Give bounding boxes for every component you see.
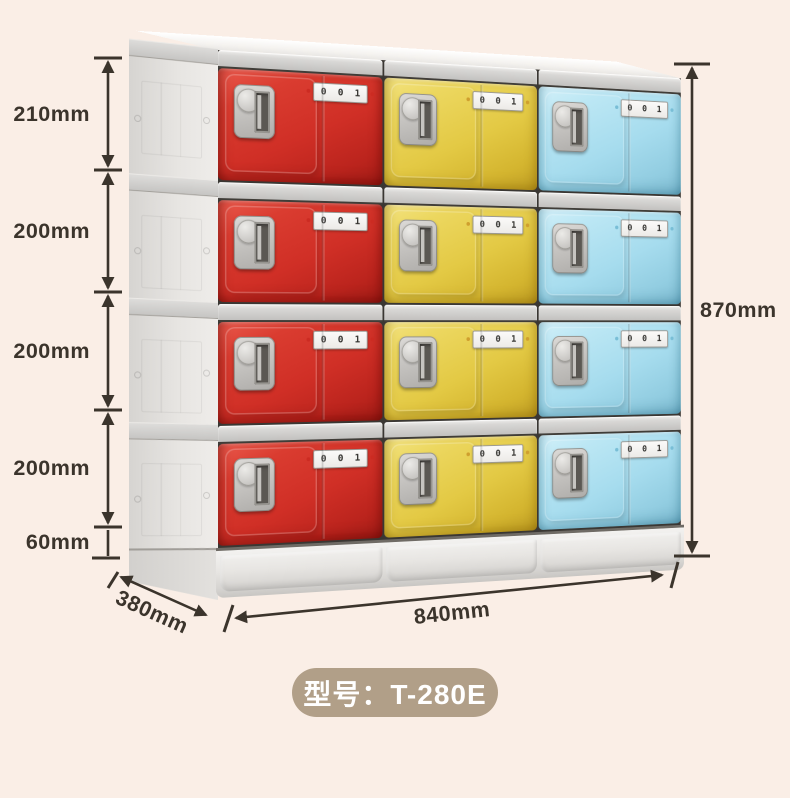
locker-column-yellow: 0 0 1 0 0 1 0 0 1 (384, 60, 537, 540)
door-number-plate: 0 0 1 (313, 331, 367, 350)
locker-door-red: 0 0 1 (218, 440, 382, 546)
door-number-plate: 0 0 1 (473, 444, 524, 463)
depth-label: 380mm (112, 585, 192, 638)
door-lock-handle (399, 452, 437, 505)
door-lock-handle (399, 93, 437, 146)
locker-cabinet: 0 0 1 0 0 1 0 0 1 (218, 50, 681, 598)
locker-side-panel (129, 39, 218, 602)
side-base-plinth (129, 548, 218, 602)
height-segment-label-3: 200mm (13, 339, 90, 363)
door-lock-handle (234, 337, 275, 391)
door-lock-handle (552, 101, 587, 152)
locker-door-blue: 0 0 1 (539, 322, 681, 417)
side-groove-panel (141, 215, 202, 291)
locker-unit: 0 0 1 (384, 305, 537, 422)
key-slot (418, 342, 432, 382)
locker-unit: 0 0 1 (384, 60, 537, 192)
locker-door-yellow: 0 0 1 (384, 435, 537, 537)
width-label: 840mm (413, 597, 492, 629)
screw-dot (134, 371, 141, 378)
locker-unit: 0 0 1 (539, 415, 681, 532)
locker-unit: 0 0 1 (218, 50, 382, 187)
door-lock-handle (399, 336, 437, 388)
dimension-tick (224, 605, 233, 632)
locker-front: 0 0 1 0 0 1 0 0 1 (218, 50, 681, 548)
door-number-plate: 0 0 1 (621, 99, 668, 119)
locker-unit: 0 0 1 (218, 422, 382, 548)
door-number-plate: 0 0 1 (621, 440, 668, 459)
locker-door-yellow: 0 0 1 (384, 205, 537, 304)
door-lock-handle (552, 336, 587, 386)
locker-door-blue: 0 0 1 (539, 86, 681, 195)
key-slot (570, 453, 583, 492)
screw-dot (134, 247, 141, 255)
unit-top-cap (539, 305, 681, 322)
key-slot (418, 458, 432, 499)
locker-door-red: 0 0 1 (218, 322, 382, 424)
key-slot (570, 341, 583, 380)
total-height-dimension: 870mm (674, 64, 777, 556)
base-height-label: 60mm (26, 530, 90, 554)
locker-unit: 0 0 1 (539, 70, 681, 197)
side-row-cap (129, 298, 218, 319)
height-segment-label-2: 200mm (13, 219, 90, 243)
base-segment (220, 547, 382, 591)
locker-unit: 0 0 1 (218, 304, 382, 426)
key-slot (418, 99, 432, 140)
height-segment-label-4: 200mm (13, 456, 90, 480)
side-groove-panel (141, 339, 202, 414)
door-number-plate: 0 0 1 (621, 219, 668, 237)
key-slot (570, 229, 583, 268)
door-number-plate: 0 0 1 (313, 82, 367, 103)
screw-dot (134, 496, 141, 503)
locker-door-blue: 0 0 1 (539, 432, 681, 531)
side-groove-panel (141, 463, 202, 536)
locker-door-red: 0 0 1 (218, 68, 382, 185)
side-row-cap (129, 422, 218, 441)
door-lock-handle (399, 219, 437, 271)
side-row-cap (129, 173, 218, 197)
locker-unit: 0 0 1 (384, 187, 537, 305)
door-number-plate: 0 0 1 (313, 449, 367, 469)
locker-column-red: 0 0 1 0 0 1 0 0 1 (218, 50, 382, 548)
door-number-plate: 0 0 1 (473, 216, 524, 235)
unit-top-cap (218, 304, 382, 322)
side-groove-panel (141, 81, 202, 159)
dimension-tick (108, 572, 118, 588)
door-lock-handle (234, 84, 275, 140)
model-badge: 型号：T-280E (292, 668, 498, 717)
locker-unit: 0 0 1 (384, 419, 537, 540)
left-dimension-chain: 210mm 200mm 200mm 200mm 60mm (13, 58, 122, 558)
door-number-plate: 0 0 1 (473, 91, 524, 111)
base-segment (386, 539, 537, 581)
locker-door-blue: 0 0 1 (539, 209, 681, 304)
screw-dot (203, 117, 210, 125)
key-slot (254, 343, 270, 385)
locker-door-red: 0 0 1 (218, 200, 382, 303)
screw-dot (203, 369, 210, 376)
total-height-label: 870mm (700, 298, 777, 322)
locker-unit: 0 0 1 (218, 182, 382, 305)
locker-column-blue: 0 0 1 0 0 1 0 0 1 (539, 70, 681, 532)
door-number-plate: 0 0 1 (473, 331, 524, 349)
door-lock-handle (552, 223, 587, 273)
product-diagram-canvas: 0 0 1 0 0 1 0 0 1 (0, 0, 790, 798)
screw-dot (203, 247, 210, 254)
locker-door-yellow: 0 0 1 (384, 78, 537, 191)
unit-top-cap (384, 305, 537, 322)
door-number-plate: 0 0 1 (621, 330, 668, 347)
locker-unit: 0 0 1 (539, 305, 681, 418)
door-lock-handle (234, 457, 275, 512)
key-slot (418, 226, 432, 266)
height-segment-label-1: 210mm (13, 102, 90, 126)
locker-door-yellow: 0 0 1 (384, 322, 537, 420)
locker-unit: 0 0 1 (539, 192, 681, 306)
key-slot (570, 107, 583, 146)
door-lock-handle (234, 215, 275, 269)
base-segment (540, 532, 680, 573)
key-slot (254, 222, 270, 264)
key-slot (254, 463, 270, 505)
door-lock-handle (552, 448, 587, 499)
screw-dot (134, 115, 141, 123)
screw-dot (203, 492, 210, 499)
key-slot (254, 91, 270, 133)
door-number-plate: 0 0 1 (313, 211, 367, 231)
